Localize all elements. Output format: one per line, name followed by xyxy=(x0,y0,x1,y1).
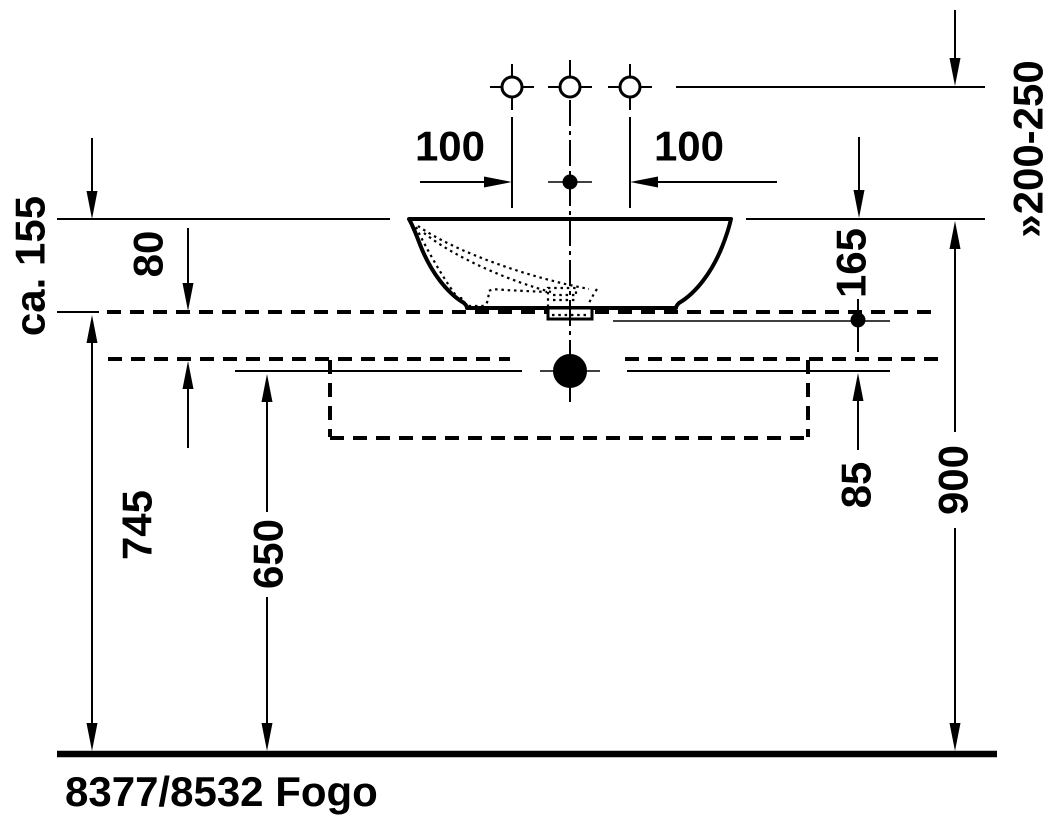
arrowhead-down xyxy=(87,723,98,751)
arrowhead-up xyxy=(87,315,98,343)
dim-165: 165 xyxy=(828,137,875,298)
dim-80: 80 xyxy=(125,228,194,448)
product-label: 8377/8532 Fogo xyxy=(65,768,378,815)
arrowhead-up xyxy=(853,373,864,401)
arrowhead-up xyxy=(183,361,194,389)
dim-900-label: 900 xyxy=(930,445,977,515)
washbasin-installation-diagram: 100 100 »200-250 ca. 155 80 xyxy=(0,0,1055,822)
arrowhead-down xyxy=(87,191,98,219)
arrowhead-up xyxy=(950,221,961,249)
dim-745: 745 xyxy=(87,315,161,751)
arrowhead-left xyxy=(630,177,658,188)
dim-ca155-label: ca. 155 xyxy=(7,196,54,336)
dim-200-250-label: »200-250 xyxy=(1005,60,1052,238)
mounting-hole-right xyxy=(608,64,652,110)
technical-drawing-page: 100 100 »200-250 ca. 155 80 xyxy=(0,0,1055,822)
arrowhead-right xyxy=(484,177,512,188)
arrowhead-down xyxy=(183,283,194,311)
dim-100-left: 100 xyxy=(415,123,512,188)
mounting-hole-center xyxy=(548,77,592,97)
mounting-hole-left xyxy=(490,64,534,110)
arrowhead-down xyxy=(950,723,961,751)
dim-165-label: 165 xyxy=(828,228,875,298)
dim-80-label: 80 xyxy=(125,231,172,278)
arrowhead-down xyxy=(950,58,961,86)
hole-circle xyxy=(502,77,522,97)
arrowhead-down xyxy=(854,190,865,218)
dim-650-label: 650 xyxy=(245,519,292,589)
reference-dot xyxy=(851,313,866,328)
arrowhead-up xyxy=(262,374,273,402)
dim-900: 900 xyxy=(930,221,977,751)
reference-dot xyxy=(563,175,578,190)
dim-85-label: 85 xyxy=(833,462,880,509)
drain-outlet xyxy=(540,356,600,386)
dim-200-250: »200-250 xyxy=(950,10,1052,238)
hole-circle xyxy=(560,77,580,97)
arrowhead-down xyxy=(262,723,273,751)
drain-circle xyxy=(555,356,585,386)
dim-745-label: 745 xyxy=(114,490,161,560)
dim-100-right: 100 xyxy=(630,123,777,188)
hole-circle xyxy=(620,77,640,97)
dim-ca155: ca. 155 xyxy=(7,138,98,336)
dim-100-right-label: 100 xyxy=(654,123,724,170)
dim-85: 85 xyxy=(833,373,880,508)
tap-center-point xyxy=(548,175,592,190)
dim-100-left-label: 100 xyxy=(415,123,485,170)
dim-650: 650 xyxy=(245,374,292,751)
